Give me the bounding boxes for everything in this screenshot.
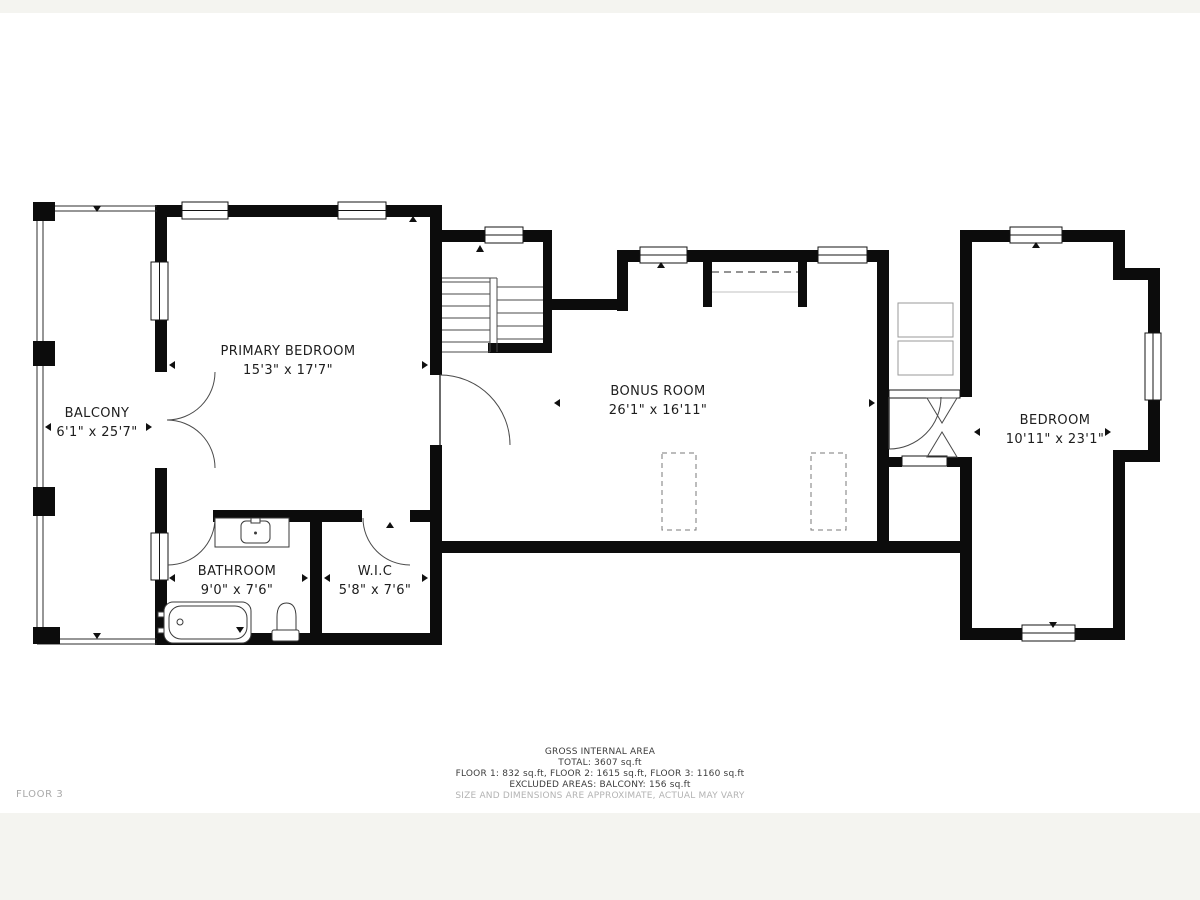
balcony-french-door xyxy=(167,420,215,468)
room-dims: 10'11" x 23'1" xyxy=(1006,430,1105,449)
room-name: BALCONY xyxy=(56,404,137,423)
stairs xyxy=(442,278,543,352)
excluded-areas: EXCLUDED AREAS: BALCONY: 156 sq.ft xyxy=(0,780,1200,791)
sink-faucet xyxy=(251,518,260,523)
floor-areas: FLOOR 1: 832 sq.ft, FLOOR 2: 1615 sq.ft,… xyxy=(0,769,1200,780)
floor-label: FLOOR 3 xyxy=(16,789,63,800)
room-dims: 6'1" x 25'7" xyxy=(56,423,137,442)
skylight xyxy=(662,453,696,530)
wic-door-swing xyxy=(363,518,410,565)
room-label-bedroom: BEDROOM 10'11" x 23'1" xyxy=(1006,411,1105,449)
room-name: BEDROOM xyxy=(1006,411,1105,430)
room-name: PRIMARY BEDROOM xyxy=(221,342,356,361)
room-label-bathroom: BATHROOM 9'0" x 7'6" xyxy=(198,562,276,600)
sink-drain xyxy=(254,532,257,535)
room-name: W.I.C xyxy=(339,562,412,581)
room-label-primary-bedroom: PRIMARY BEDROOM 15'3" x 17'7" xyxy=(221,342,356,380)
bifold-door xyxy=(927,398,957,423)
bifold-door xyxy=(927,432,957,457)
total-area: TOTAL: 3607 sq.ft xyxy=(0,758,1200,769)
toilet-tank xyxy=(272,630,299,641)
area-summary: GROSS INTERNAL AREA TOTAL: 3607 sq.ft FL… xyxy=(0,747,1200,802)
toilet-bowl xyxy=(277,603,296,630)
floorplan-page: BALCONY 6'1" x 25'7" PRIMARY BEDROOM 15'… xyxy=(0,0,1200,900)
bathtub-faucet xyxy=(177,619,183,625)
room-name: BONUS ROOM xyxy=(609,382,708,401)
vestibule-door-swing xyxy=(889,397,941,449)
room-label-wic: W.I.C 5'8" x 7'6" xyxy=(339,562,412,600)
closet-shelves xyxy=(898,303,953,375)
balcony-post xyxy=(33,487,55,516)
balcony-post xyxy=(33,341,55,366)
room-label-balcony: BALCONY 6'1" x 25'7" xyxy=(56,404,137,442)
skylight xyxy=(811,453,846,530)
bathtub-tap xyxy=(158,612,164,617)
room-name: BATHROOM xyxy=(198,562,276,581)
balcony-post xyxy=(33,627,60,644)
bathtub-tap xyxy=(158,628,164,633)
room-dims: 5'8" x 7'6" xyxy=(339,581,412,600)
cased-opening xyxy=(889,390,960,398)
bathroom-door-swing xyxy=(168,518,215,565)
room-dims: 9'0" x 7'6" xyxy=(198,581,276,600)
room-dims: 15'3" x 17'7" xyxy=(221,361,356,380)
room-label-bonus-room: BONUS ROOM 26'1" x 16'11" xyxy=(609,382,708,420)
disclaimer: SIZE AND DIMENSIONS ARE APPROXIMATE, ACT… xyxy=(0,791,1200,802)
room-dims: 26'1" x 16'11" xyxy=(609,401,708,420)
balcony-french-door xyxy=(167,372,215,420)
gross-internal-area-title: GROSS INTERNAL AREA xyxy=(0,747,1200,758)
primary-bedroom-door-swing xyxy=(440,375,510,445)
balcony-post xyxy=(33,202,55,221)
